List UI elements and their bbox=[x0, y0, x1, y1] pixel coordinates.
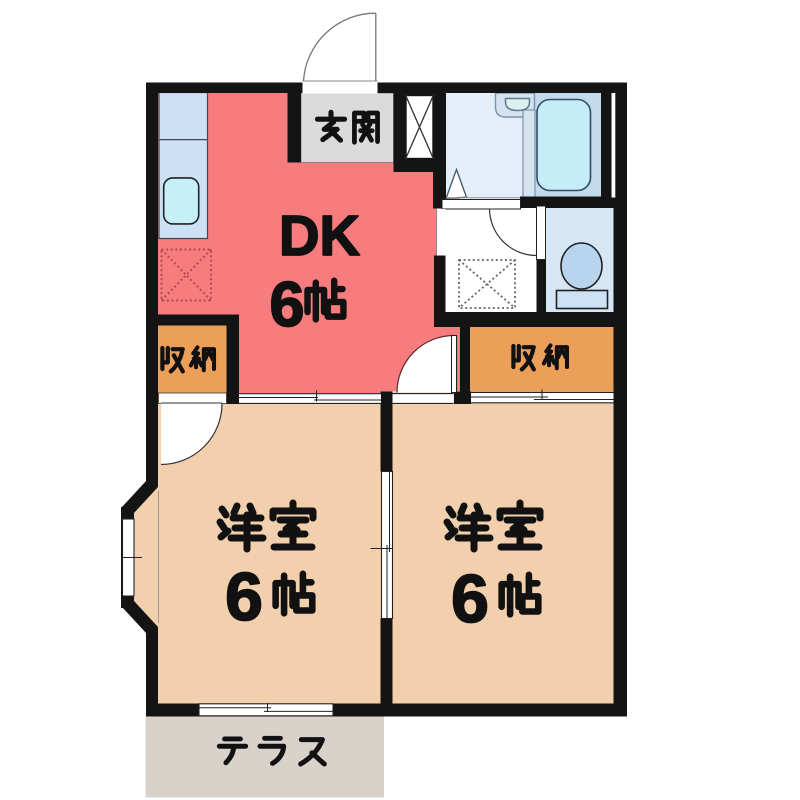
svg-text:6: 6 bbox=[269, 270, 304, 340]
svg-text:6: 6 bbox=[225, 559, 263, 635]
svg-text:6: 6 bbox=[451, 561, 489, 637]
svg-text:DK: DK bbox=[279, 204, 360, 268]
